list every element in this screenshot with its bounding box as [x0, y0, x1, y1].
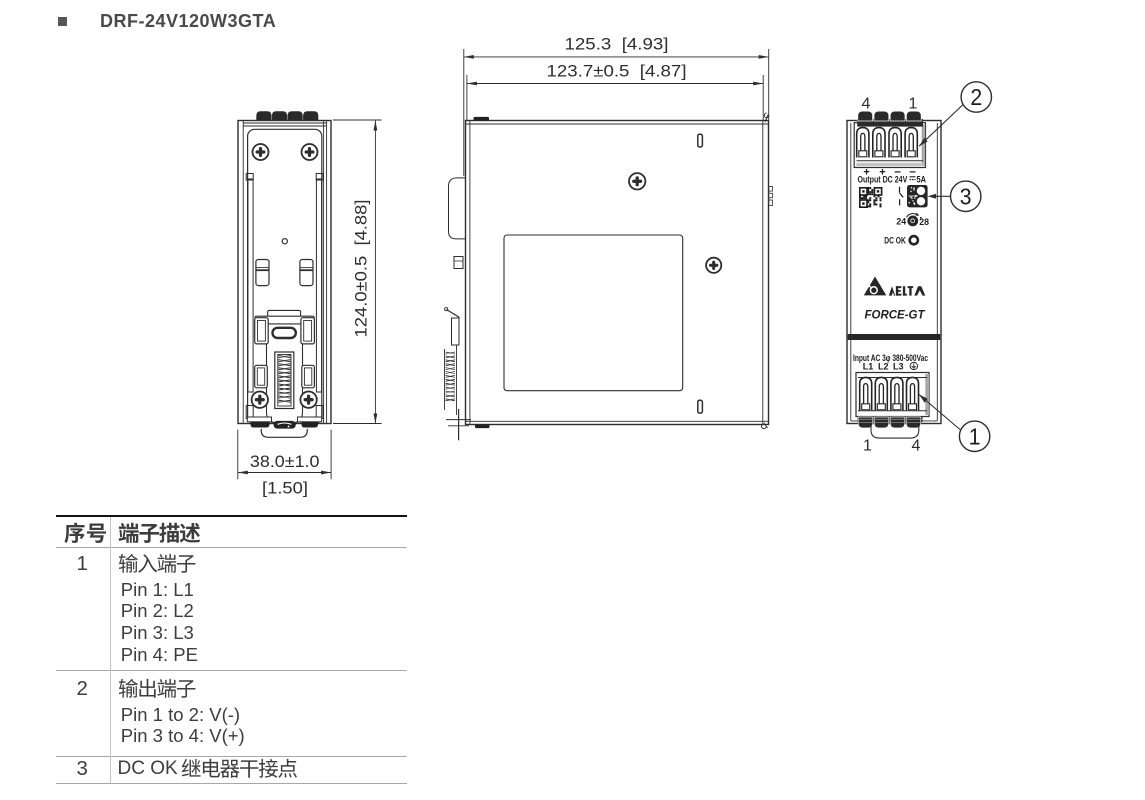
svg-text:124.0±0.5 [4.88]: 124.0±0.5 [4.88] — [353, 200, 371, 338]
svg-text:L2: L2 — [878, 362, 889, 372]
svg-text:4: 4 — [862, 96, 871, 113]
svg-text:Output DC 24V: Output DC 24V — [858, 174, 908, 185]
svg-text:5A: 5A — [917, 174, 927, 185]
svg-text:2: 2 — [970, 84, 982, 110]
svg-text:125.3 [4.93]: 125.3 [4.93] — [565, 36, 669, 54]
svg-text:28: 28 — [919, 217, 929, 227]
svg-text:L1: L1 — [863, 362, 874, 372]
svg-text:4: 4 — [912, 438, 921, 455]
svg-text:38.0±1.0: 38.0±1.0 — [250, 453, 320, 471]
svg-text:24: 24 — [896, 217, 906, 227]
svg-text:1: 1 — [969, 424, 981, 450]
svg-text:FORCE-GT: FORCE-GT — [865, 308, 926, 321]
svg-text:123.7±0.5 [4.87]: 123.7±0.5 [4.87] — [547, 63, 687, 81]
svg-text:[1.50]: [1.50] — [262, 480, 308, 498]
svg-text:1: 1 — [863, 438, 872, 455]
svg-text:3: 3 — [960, 184, 972, 210]
svg-text:–: – — [909, 164, 916, 178]
svg-text:1: 1 — [909, 96, 918, 113]
svg-text:DC OK: DC OK — [884, 236, 906, 246]
svg-text:L3: L3 — [893, 362, 904, 372]
